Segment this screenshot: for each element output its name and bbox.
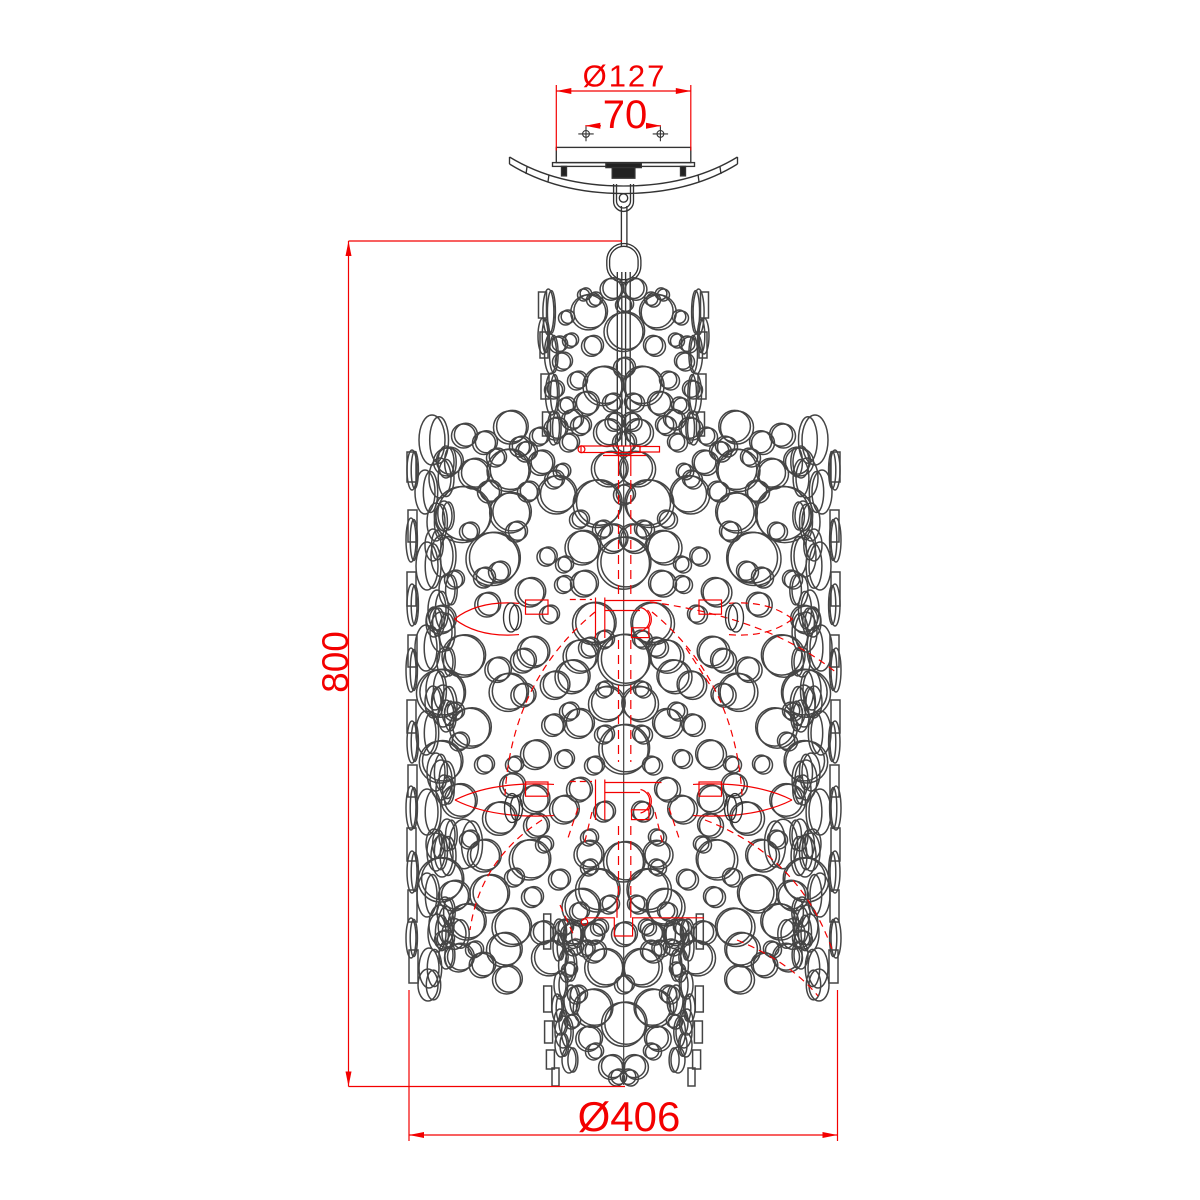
svg-text:Ø127: Ø127 [583, 59, 667, 94]
svg-text:Ø406: Ø406 [578, 1093, 681, 1140]
svg-text:800: 800 [315, 631, 356, 693]
svg-text:70: 70 [603, 93, 648, 137]
